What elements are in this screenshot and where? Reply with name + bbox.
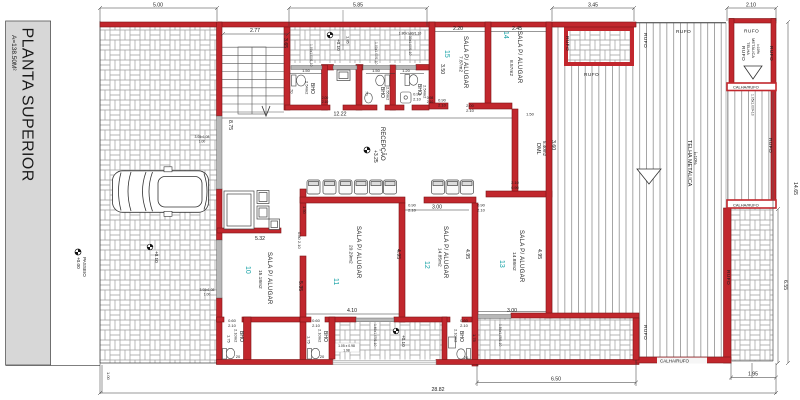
svg-text:DML: DML: [535, 143, 541, 155]
svg-text:14: 14: [502, 31, 509, 39]
svg-text:4.10: 4.10: [347, 308, 357, 314]
svg-text:2.10m2: 2.10m2: [234, 329, 239, 343]
svg-text:CALHA/RUFO: CALHA/RUFO: [733, 85, 759, 90]
svg-text:1.85: 1.85: [346, 36, 351, 45]
svg-text:+0.10: +0.10: [401, 335, 406, 347]
svg-text:0.90: 0.90: [511, 185, 520, 190]
svg-text:1.75: 1.75: [227, 335, 232, 344]
svg-text:3.00: 3.00: [432, 205, 442, 211]
svg-text:1.05 x 0.98: 1.05 x 0.98: [338, 344, 355, 348]
svg-text:PLANTA SUPERIOR: PLANTA SUPERIOR: [19, 28, 36, 182]
svg-text:2.77: 2.77: [250, 28, 260, 34]
svg-text:2.10: 2.10: [427, 100, 434, 104]
svg-text:6.55: 6.55: [782, 280, 788, 290]
svg-text:2.10: 2.10: [322, 100, 329, 104]
svg-text:10: 10: [244, 266, 251, 274]
svg-text:28.82: 28.82: [432, 387, 445, 393]
svg-text:PASSEIO: PASSEIO: [82, 257, 87, 277]
svg-text:RUFO: RUFO: [584, 72, 599, 78]
svg-text:2.10: 2.10: [312, 323, 321, 328]
svg-text:RUFO: RUFO: [768, 46, 774, 61]
svg-text:1.05x1.00/+10: 1.05x1.00/+10: [751, 94, 755, 116]
svg-text:2.54m2: 2.54m2: [305, 81, 310, 95]
svg-text:1.50: 1.50: [372, 68, 381, 73]
svg-text:70: 70: [290, 89, 295, 94]
svg-text:14.88m2: 14.88m2: [511, 252, 517, 271]
svg-text:RUFO: RUFO: [725, 270, 731, 285]
svg-text:12.22: 12.22: [334, 112, 347, 118]
svg-text:2.10m2: 2.10m2: [454, 329, 459, 343]
svg-text:20: 20: [320, 354, 325, 359]
svg-text:SALA P/ ALUGAR: SALA P/ ALUGAR: [442, 226, 448, 279]
svg-text:1.00: 1.00: [199, 140, 206, 144]
svg-text:3.65: 3.65: [282, 38, 288, 48]
svg-text:1.50x1.05/1.10: 1.50x1.05/1.10: [498, 324, 502, 347]
svg-text:3.45: 3.45: [588, 3, 598, 9]
svg-text:SALA P/ ALUGAR: SALA P/ ALUGAR: [518, 230, 524, 283]
svg-text:8.75: 8.75: [227, 120, 233, 130]
svg-text:RUFO: RUFO: [740, 46, 746, 61]
svg-text:20: 20: [236, 354, 241, 359]
svg-text:14.85m2: 14.85m2: [437, 248, 443, 267]
svg-text:1.00x1.00/1.10: 1.00x1.00/1.10: [309, 44, 313, 67]
svg-text:BHO: BHO: [379, 87, 385, 98]
svg-text:5.32: 5.32: [255, 236, 265, 242]
svg-text:1.75: 1.75: [472, 334, 477, 343]
svg-text:3.08x1.08: 3.08x1.08: [200, 288, 215, 292]
svg-text:1.95: 1.95: [748, 372, 758, 378]
svg-text:2.20: 2.20: [453, 26, 463, 32]
svg-text:RUFO: RUFO: [564, 36, 570, 51]
svg-text:2.55m2: 2.55m2: [386, 87, 391, 101]
svg-text:2.10: 2.10: [413, 97, 422, 102]
svg-text:+3.25: +3.25: [372, 150, 378, 163]
svg-text:11: 11: [332, 278, 339, 285]
svg-text:1.50: 1.50: [302, 206, 307, 215]
svg-text:1.50: 1.50: [302, 68, 311, 73]
svg-text:METÁLICA: METÁLICA: [751, 38, 756, 58]
svg-text:5.85: 5.85: [353, 3, 363, 9]
svg-text:RUFO: RUFO: [767, 138, 773, 153]
svg-text:3.50: 3.50: [439, 64, 445, 74]
svg-text:5.00: 5.00: [153, 3, 163, 9]
svg-text:3.60: 3.60: [550, 140, 556, 150]
svg-text:1.50: 1.50: [526, 112, 535, 117]
svg-text:CALHA/RUFO: CALHA/RUFO: [733, 203, 759, 208]
svg-text:+0.10: +0.10: [154, 251, 159, 263]
svg-text:5.35: 5.35: [297, 281, 303, 291]
svg-text:3.08x1.08: 3.08x1.08: [195, 135, 210, 139]
svg-text:1.20: 1.20: [402, 68, 411, 73]
svg-text:2.10: 2.10: [228, 323, 237, 328]
svg-text:i=10%: i=10%: [693, 152, 698, 165]
svg-text:0.80 2.10: 0.80 2.10: [297, 232, 302, 249]
svg-text:5.40m2: 5.40m2: [542, 141, 547, 157]
svg-text:1.30x1.00/1.10: 1.30x1.00/1.10: [408, 33, 412, 56]
svg-text:CALHA/RUFO: CALHA/RUFO: [660, 359, 690, 364]
svg-text:4.95: 4.95: [395, 249, 401, 259]
svg-text:8.57m2: 8.57m2: [508, 60, 514, 76]
svg-text:1.00: 1.00: [106, 372, 111, 381]
svg-text:13: 13: [498, 260, 505, 268]
svg-text:2.10: 2.10: [438, 103, 447, 108]
svg-text:2.54m2: 2.54m2: [423, 85, 428, 99]
svg-text:RUFO: RUFO: [642, 33, 648, 48]
svg-text:4.95: 4.95: [536, 249, 542, 259]
svg-text:2.10: 2.10: [460, 323, 469, 328]
svg-text:1.00x1.00/1.10: 1.00x1.00/1.10: [374, 42, 378, 65]
svg-text:BHO: BHO: [416, 84, 422, 95]
svg-text:1.60x1.05/1.10: 1.60x1.05/1.10: [373, 324, 377, 347]
svg-text:20: 20: [464, 355, 469, 360]
svg-text:70: 70: [365, 91, 370, 96]
svg-text:TELHA METÁLICA: TELHA METÁLICA: [686, 140, 693, 187]
svg-text:+0.00: +0.00: [76, 257, 81, 269]
svg-text:1.00: 1.00: [204, 293, 211, 297]
svg-text:15.18m2: 15.18m2: [257, 270, 263, 289]
svg-text:A=138.50M²: A=138.50M²: [10, 35, 17, 71]
svg-text:1.75: 1.75: [307, 336, 312, 345]
svg-text:12: 12: [423, 261, 430, 269]
svg-text:4.95: 4.95: [464, 249, 470, 259]
svg-text:15: 15: [443, 50, 450, 58]
svg-text:6.50: 6.50: [551, 377, 561, 383]
svg-text:RUFO: RUFO: [744, 29, 759, 35]
svg-text:SALA P/ ALUGAR: SALA P/ ALUGAR: [266, 252, 272, 305]
svg-text:RECEPÇÃO: RECEPÇÃO: [379, 127, 386, 161]
svg-text:i=10%: i=10%: [756, 44, 760, 54]
svg-text:RUFO: RUFO: [676, 29, 691, 35]
svg-text:RUFO: RUFO: [642, 325, 648, 340]
svg-text:1.98: 1.98: [343, 349, 350, 353]
svg-text:+0.10: +0.10: [336, 39, 341, 51]
svg-text:SALA P/ ALUGAR: SALA P/ ALUGAR: [355, 226, 361, 279]
svg-text:2.10: 2.10: [466, 108, 475, 113]
svg-text:3.00: 3.00: [507, 308, 517, 314]
svg-text:2.10: 2.10: [477, 208, 486, 213]
svg-text:14.65: 14.65: [792, 182, 798, 195]
svg-text:2.10: 2.10: [408, 208, 417, 213]
svg-text:TELHA: TELHA: [746, 42, 751, 55]
svg-text:20.29m2: 20.29m2: [348, 245, 354, 264]
svg-text:SALA P/ ALUGAR: SALA P/ ALUGAR: [462, 36, 468, 89]
svg-text:2.10: 2.10: [746, 3, 756, 9]
svg-text:2.10m2: 2.10m2: [318, 329, 323, 343]
svg-text:SALA P/ ALUGAR: SALA P/ ALUGAR: [516, 31, 522, 84]
